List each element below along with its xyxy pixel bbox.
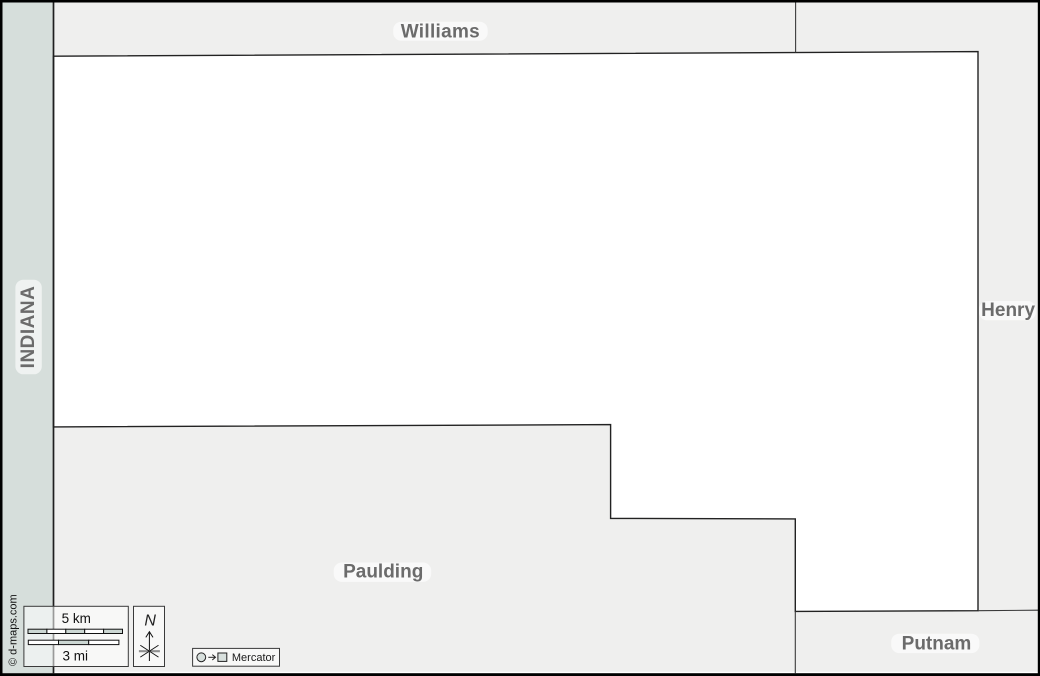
- svg-text:3 mi: 3 mi: [62, 649, 88, 664]
- svg-text:N: N: [144, 613, 156, 630]
- svg-text:Henry: Henry: [981, 300, 1035, 321]
- svg-text:Williams: Williams: [401, 22, 480, 43]
- svg-text:© d-maps.com: © d-maps.com: [8, 594, 20, 666]
- svg-text:INDIANA: INDIANA: [18, 286, 39, 369]
- svg-text:Putnam: Putnam: [902, 633, 972, 654]
- svg-text:5 km: 5 km: [62, 611, 91, 626]
- svg-text:Mercator: Mercator: [232, 652, 276, 664]
- svg-text:Paulding: Paulding: [343, 561, 423, 582]
